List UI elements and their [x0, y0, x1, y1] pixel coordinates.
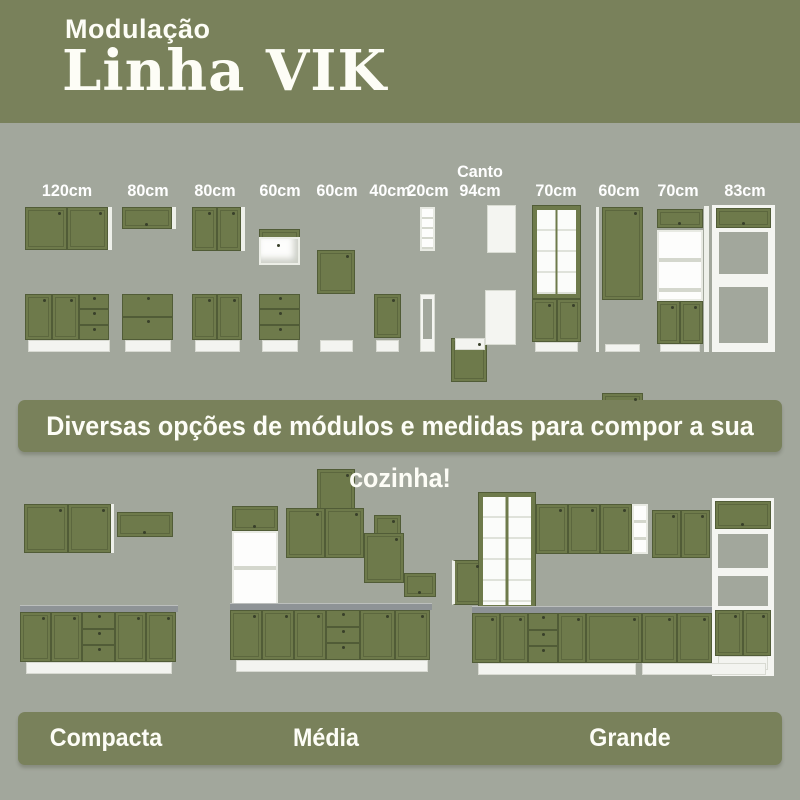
open-recess: [719, 287, 768, 343]
drawer: [259, 325, 300, 340]
kitchen-label-bar: Compacta Média Grande: [18, 712, 782, 765]
base-run-right: [642, 613, 712, 663]
plinth: [376, 340, 399, 352]
module-wall-40cm-door: [374, 294, 401, 338]
countertop: [20, 605, 178, 612]
cabinet-door: [262, 610, 294, 660]
base-doors: [657, 301, 703, 344]
cabinet-door: [677, 613, 712, 663]
plinth: [535, 342, 578, 352]
open-recess: [718, 534, 768, 568]
size-label-120cm: 120cm: [29, 181, 105, 200]
module-base-80cm-doors: [192, 294, 242, 340]
plinth: [660, 344, 700, 352]
drawer: [82, 645, 115, 662]
plinth: [28, 340, 110, 352]
drawer: [122, 294, 173, 317]
module-wall-60cm-door: [317, 250, 355, 294]
open-recess: [719, 232, 768, 274]
tall-unit-flip-door: [232, 506, 278, 531]
countertop: [230, 603, 432, 610]
cabinet-door: [500, 613, 528, 663]
wall-flip-cabinet: [117, 512, 173, 537]
cabinet-door: [217, 294, 242, 340]
cabinet-door: [294, 610, 326, 660]
cabinet-door: [652, 510, 681, 558]
page-title: Linha VIK: [62, 38, 387, 104]
plinth: [320, 340, 353, 352]
wall-cabinet-door: [364, 533, 404, 583]
size-label-83cm: 83cm: [707, 181, 783, 200]
kitchen-compacta: [18, 494, 188, 694]
module-wall-80cm-doors: [192, 207, 241, 251]
wall-flip-cabinet: [404, 573, 436, 597]
cabinet-door: [557, 299, 582, 342]
cabinet-door: [325, 508, 364, 558]
glass-doors: [532, 205, 581, 299]
banner: Diversas opções de módulos e medidas par…: [18, 400, 782, 452]
plinth: [195, 340, 240, 352]
corner-open-shelf: [632, 504, 648, 554]
cabinet-door: [360, 610, 395, 660]
glass-panes: [537, 210, 576, 294]
drawer: [259, 294, 300, 309]
cabinet-door: [67, 207, 109, 250]
countertop-right: [644, 606, 712, 613]
cabinet-door: [681, 510, 710, 558]
cabinet-door: [146, 612, 176, 662]
tall-glass-cabinet: [478, 492, 536, 610]
plinth: [262, 340, 298, 352]
drawer: [122, 317, 173, 340]
cabinet-door: [532, 299, 557, 342]
module-tall-70cm-oven-tower: [657, 209, 703, 352]
module-wall-60cm-niche: [259, 237, 300, 265]
base-doors: [532, 299, 581, 342]
drawer: [326, 610, 360, 627]
cabinet-door: [20, 612, 51, 662]
flip-door: [657, 209, 703, 228]
module-wall-80cm-flip: [122, 207, 172, 229]
cabinet-door: [657, 301, 680, 344]
drawer-stack: [528, 613, 558, 663]
open-recess: [423, 299, 432, 339]
flip-door: [715, 501, 771, 529]
cabinet-door: [642, 613, 677, 663]
base-run: [230, 610, 430, 660]
tall-tower: [712, 498, 774, 676]
carcass-side: [241, 207, 245, 251]
drawer: [79, 294, 109, 309]
drawer: [259, 309, 300, 324]
module-base-80cm-drawers: [122, 294, 173, 340]
drawer: [79, 325, 109, 340]
cabinet-door: [715, 610, 743, 656]
drawer-stack: [326, 610, 360, 660]
drawer: [82, 612, 115, 629]
header-band: Modulação Linha VIK: [0, 0, 800, 123]
carcass-side: [704, 206, 709, 352]
drawer: [528, 646, 558, 663]
carcass-side: [108, 207, 112, 250]
cabinet-door: [217, 207, 242, 251]
drawer: [528, 630, 558, 647]
module-base-120cm: [25, 294, 109, 340]
cabinet-door: [192, 207, 217, 251]
base-run: [20, 612, 176, 662]
cabinet-door: [600, 504, 632, 554]
cabinet-door: [24, 504, 68, 553]
module-wall-canto-panel: [487, 205, 516, 253]
cabinet-door: [568, 504, 600, 554]
drawer: [528, 613, 558, 630]
promo-page: Modulação Linha VIK 120cm 80cm 80cm 60cm…: [0, 0, 800, 800]
module-base-20cm-open: [420, 294, 435, 352]
label-grande: Grande: [556, 712, 705, 765]
open-recess: [718, 576, 768, 606]
cabinet-door: [25, 294, 52, 340]
wall-cabinet: [24, 504, 114, 553]
module-tall-83cm-frame: [712, 205, 775, 352]
module-base-canto-panel: [485, 290, 516, 345]
cabinet-door: [680, 301, 703, 344]
cabinet-door: [115, 612, 146, 662]
plinth: [26, 662, 172, 674]
cabinet-door: [51, 612, 82, 662]
base-doors: [715, 610, 771, 656]
size-label-80cm-a: 80cm: [110, 181, 186, 200]
flip-door: [716, 208, 771, 228]
drawer: [326, 643, 360, 660]
drawer-stack: [79, 294, 109, 340]
plinth: [605, 344, 640, 352]
wall-run-right: [652, 510, 710, 558]
cabinet-door: [25, 207, 67, 250]
drawer: [82, 629, 115, 646]
cabinet-door: [586, 613, 642, 663]
label-compacta: Compacta: [32, 712, 181, 765]
cabinet-door: [192, 294, 217, 340]
kitchen-media: [222, 490, 437, 695]
plinth-right: [642, 663, 766, 675]
module-base-60cm-drawers: [259, 294, 300, 340]
label-media: Média: [252, 712, 401, 765]
tall-unit-open-shelves: [232, 531, 278, 605]
wall-run-left: [536, 504, 632, 554]
wall-cabinet: [286, 508, 364, 558]
cabinet-door: [230, 610, 262, 660]
module-tall-70cm-glass: [532, 205, 581, 352]
pantry-door-upper: [602, 207, 643, 300]
drawer: [326, 627, 360, 644]
cabinet-door: [472, 613, 500, 663]
size-label-canto-94cm: Canto94cm: [442, 162, 518, 200]
open-shelves: [657, 230, 703, 301]
drawer-stack: [82, 612, 115, 662]
cabinet-door: [743, 610, 771, 656]
base-run-left: [472, 613, 642, 663]
plinth: [125, 340, 171, 352]
kitchen-grande: [466, 484, 792, 694]
module-wall-20cm-shelf: [420, 207, 435, 251]
drawer: [79, 309, 109, 324]
cabinet-door: [68, 504, 112, 553]
cabinet-door: [558, 613, 586, 663]
cabinet-door: [52, 294, 79, 340]
cabinet-door: [286, 508, 325, 558]
plinth-left: [478, 663, 636, 675]
size-label-70cm-b: 70cm: [640, 181, 716, 200]
cabinet-door: [395, 610, 430, 660]
carcass-side: [172, 207, 176, 229]
glass-panes: [483, 497, 531, 605]
plinth: [236, 660, 428, 672]
countertop-left: [472, 606, 644, 613]
cabinet-door: [536, 504, 568, 554]
module-wall-120cm: [25, 207, 108, 250]
module-tall-60cm-pantry: [596, 207, 640, 352]
